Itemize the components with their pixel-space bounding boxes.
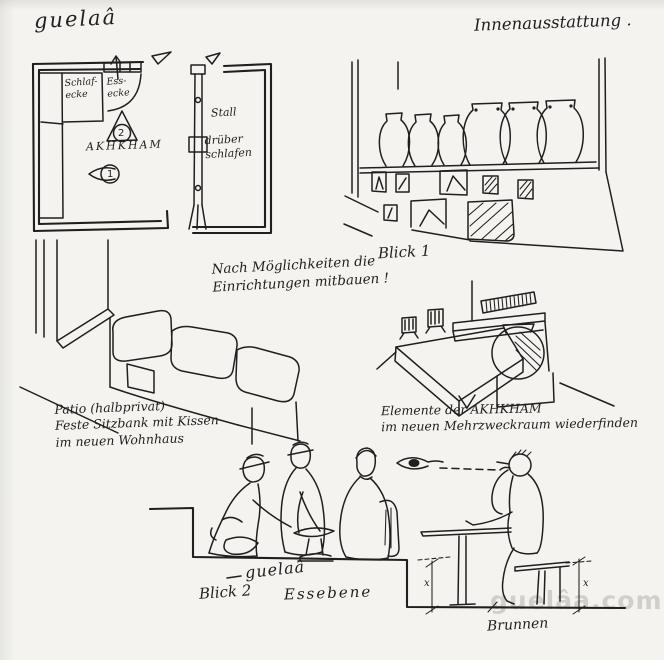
dining-corner-label: Ess- ecke [106,75,130,101]
seated-figure-1 [209,454,291,556]
orientation-flag-icon [152,52,171,64]
view-marker-1-number: 1 [107,168,113,181]
seated-figure-3 [340,448,399,560]
alcove-bed-drawing [377,281,614,416]
view-direction-eye-icon [397,458,497,470]
stable-label-top: Stall [211,105,237,121]
seated-figure-at-table [466,450,543,604]
dimension-label-left: x [424,577,430,590]
view-2-caption: Blick 2 [198,581,252,604]
line-art [0,0,664,660]
page-title: guelaâ [33,4,117,36]
stable-label-bottom: drüber schlafen [204,132,252,163]
bed-caption: Elemente der AKHKHAM im neuen Mehrzweckr… [381,399,638,436]
sketch-page: guelâa.com [0,0,664,660]
orientation-flag-icon [206,53,220,64]
room-name-label: AKHKHAM [86,138,163,155]
patio-caption: Patio (halbprivat) Feste Sitzbank mit Ki… [54,396,219,450]
dimension-label-right: x [583,577,589,590]
view-direction-eye-icon [89,165,119,183]
seated-figure-2 [281,442,325,555]
eating-level-caption: Essebene [284,582,373,605]
well-caption: Brunnen [487,614,549,635]
jar-shelf-drawing [344,58,623,251]
sleep-corner-label: Schlaf- ecke [64,76,99,103]
